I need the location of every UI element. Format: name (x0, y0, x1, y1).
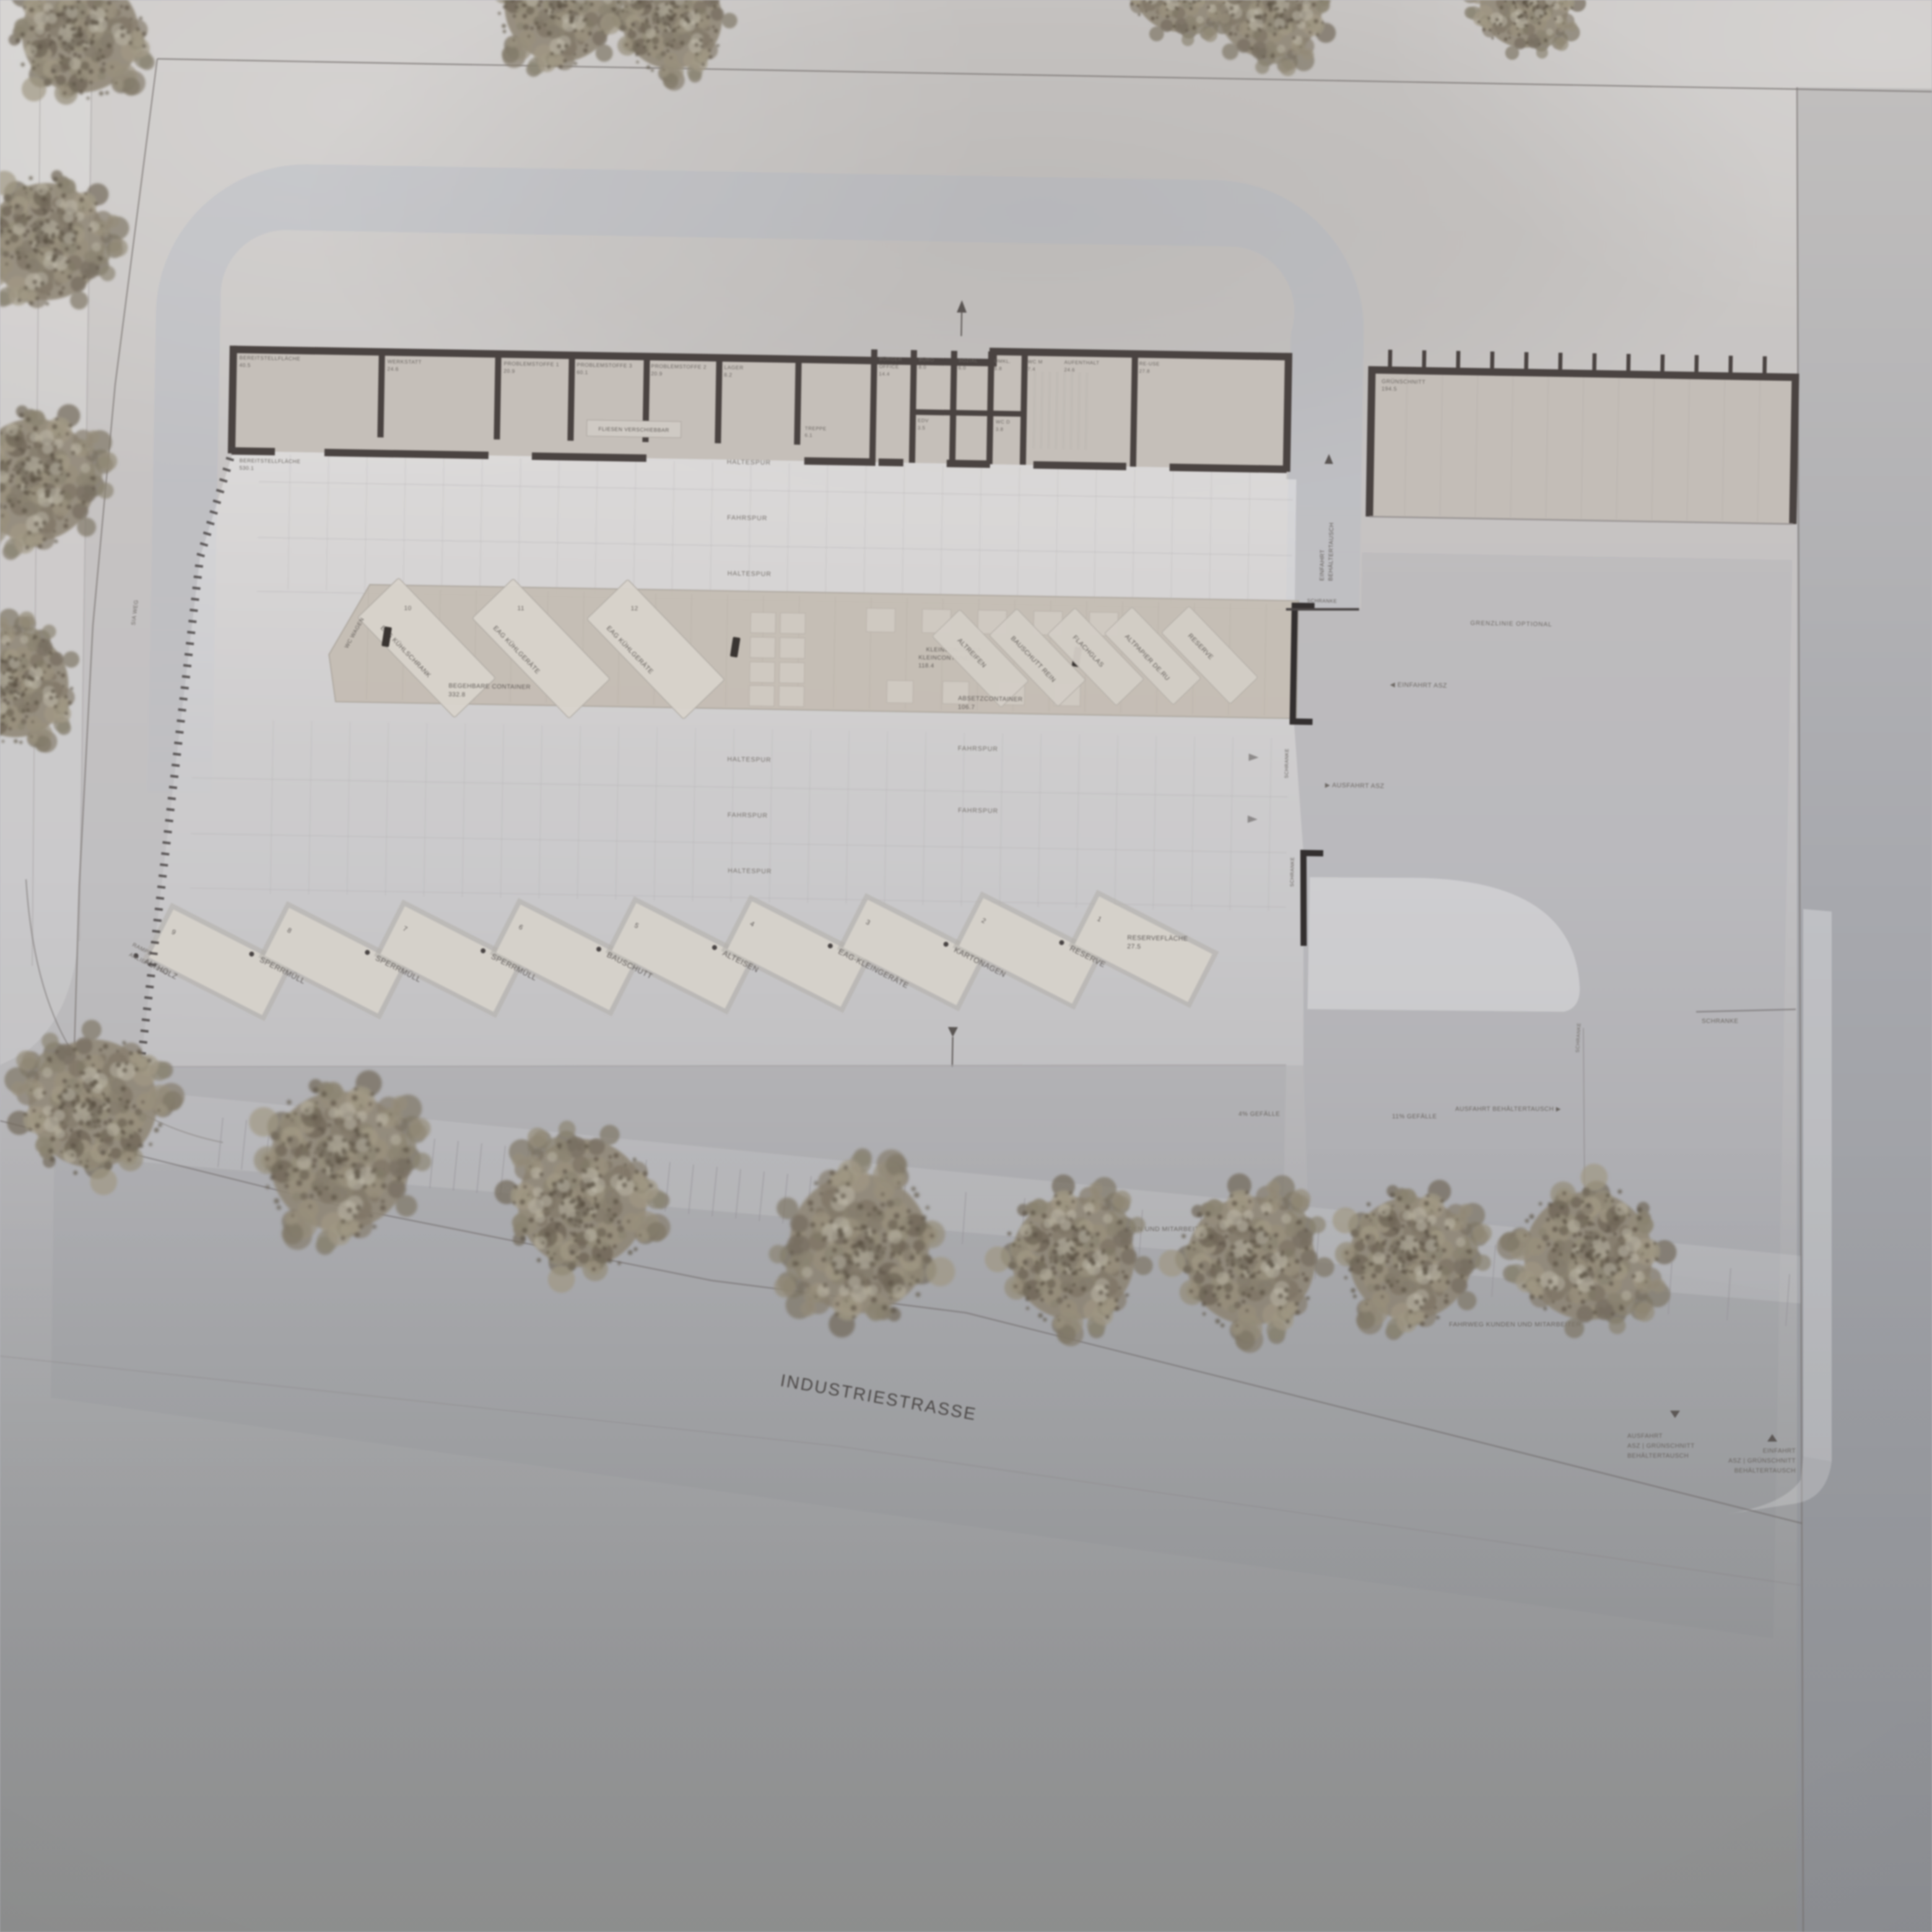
svg-text:EINFAHRT: EINFAHRT (1319, 549, 1326, 581)
svg-text:PROBLEMSTOFFE 2: PROBLEMSTOFFE 2 (651, 363, 707, 370)
svg-text:BÜRO: BÜRO (919, 357, 934, 363)
svg-text:6.1: 6.1 (804, 432, 812, 438)
svg-text:GRÜNSCHNITT: GRÜNSCHNITT (1382, 378, 1425, 385)
svg-text:BEGEHBARE CONTAINER: BEGEHBARE CONTAINER (448, 682, 531, 690)
svg-text:EDV: EDV (918, 418, 929, 424)
svg-text:EINFAHRT: EINFAHRT (1763, 1448, 1796, 1455)
svg-text:3.8: 3.8 (996, 427, 1004, 432)
svg-text:SCHRANKE: SCHRANKE (1307, 598, 1338, 604)
svg-text:SCHRANKE: SCHRANKE (1702, 1018, 1739, 1025)
svg-text:UMKL.: UMKL. (994, 359, 1011, 364)
svg-text:FAHRSPUR: FAHRSPUR (727, 514, 767, 522)
svg-text:◀ EINFAHRT ASZ: ◀ EINFAHRT ASZ (1390, 681, 1448, 690)
svg-text:▶ AUSFAHRT ASZ: ▶ AUSFAHRT ASZ (1325, 781, 1385, 790)
svg-text:20.9: 20.9 (503, 368, 515, 374)
svg-text:FAHRSPUR: FAHRSPUR (958, 807, 998, 815)
svg-text:HALTESPUR: HALTESPUR (727, 755, 771, 764)
svg-text:LAGER: LAGER (724, 364, 743, 371)
svg-text:10: 10 (404, 605, 411, 612)
svg-text:AUSFAHRT BEHÄLTERTAUSCH ▶: AUSFAHRT BEHÄLTERTAUSCH ▶ (1455, 1105, 1561, 1113)
svg-text:4% GEFÄLLE: 4% GEFÄLLE (1238, 1110, 1280, 1118)
svg-text:FAHRSPUR: FAHRSPUR (958, 745, 998, 753)
svg-text:HALTESPUR: HALTESPUR (728, 570, 772, 578)
svg-text:ABSETZCONTAINER: ABSETZCONTAINER (958, 695, 1023, 703)
svg-text:14.4: 14.4 (879, 371, 890, 376)
svg-text:BEHÄLTERTAUSCH: BEHÄLTERTAUSCH (1328, 522, 1336, 581)
svg-text:PROBLEMSTOFFE 3: PROBLEMSTOFFE 3 (577, 362, 632, 369)
svg-text:BEREITSTELLFLÄCHE: BEREITSTELLFLÄCHE (240, 354, 301, 362)
svg-text:8.0: 8.0 (918, 365, 926, 370)
svg-text:BEHÄLTERTAUSCH: BEHÄLTERTAUSCH (1627, 1452, 1689, 1460)
svg-text:BEREITSTELLFLÄCHE: BEREITSTELLFLÄCHE (240, 457, 301, 464)
svg-text:RESERVEFLÄCHE: RESERVEFLÄCHE (1127, 934, 1188, 943)
svg-text:HALTESPUR: HALTESPUR (728, 867, 772, 875)
svg-text:AUFENTHALT: AUFENTHALT (1064, 360, 1100, 366)
svg-text:24.6: 24.6 (387, 366, 399, 372)
svg-text:SCHRANKE: SCHRANKE (1284, 748, 1290, 778)
svg-text:40.5: 40.5 (239, 362, 251, 368)
svg-text:PROBLEMSTOFFE 1: PROBLEMSTOFFE 1 (503, 360, 559, 368)
svg-text:FLIESEN VERSCHIEBBAR: FLIESEN VERSCHIEBBAR (598, 426, 669, 433)
svg-text:OFFICE: OFFICE (879, 363, 899, 370)
svg-text:530.1: 530.1 (239, 464, 254, 471)
svg-text:6.0: 6.0 (958, 365, 966, 371)
svg-text:FAHRWEG KUNDEN UND MITARBEITER: FAHRWEG KUNDEN UND MITARBEITER (1449, 1321, 1582, 1328)
svg-text:WC D: WC D (996, 419, 1010, 425)
svg-text:11: 11 (517, 605, 524, 612)
svg-text:106.7: 106.7 (958, 704, 975, 711)
svg-text:ASZ | GRÜNSCHNITT: ASZ | GRÜNSCHNITT (1728, 1457, 1796, 1464)
svg-text:RE-USE: RE-USE (1139, 361, 1160, 367)
svg-text:5.8: 5.8 (994, 366, 1002, 372)
svg-text:WERKSTATT: WERKSTATT (387, 359, 422, 365)
svg-text:3.5: 3.5 (918, 425, 926, 431)
svg-text:ASZ | GRÜNSCHNITT: ASZ | GRÜNSCHNITT (1627, 1442, 1695, 1450)
svg-text:BÜRGER: BÜRGER (879, 356, 902, 362)
svg-text:AUSFAHRT: AUSFAHRT (1627, 1433, 1663, 1440)
svg-text:11% GEFÄLLE: 11% GEFÄLLE (1392, 1113, 1437, 1120)
svg-text:194.5: 194.5 (1382, 386, 1397, 392)
svg-text:7.4: 7.4 (1027, 367, 1035, 372)
svg-text:TREPPE: TREPPE (805, 425, 827, 432)
svg-text:118.4: 118.4 (918, 663, 934, 669)
svg-text:60.1: 60.1 (577, 369, 588, 375)
svg-text:SOZIAL: SOZIAL (959, 358, 978, 364)
svg-text:WC M: WC M (1028, 359, 1043, 365)
svg-text:27.5: 27.5 (1127, 943, 1141, 951)
svg-text:BEHÄLTERTAUSCH: BEHÄLTERTAUSCH (1734, 1467, 1796, 1474)
svg-text:8.2: 8.2 (724, 372, 733, 378)
svg-text:12: 12 (631, 605, 638, 612)
svg-text:FAHRSPUR: FAHRSPUR (728, 811, 768, 819)
svg-text:GRENZLINIE OPTIONAL: GRENZLINIE OPTIONAL (1470, 620, 1552, 628)
svg-text:332.8: 332.8 (448, 691, 466, 698)
svg-text:SCHRANKE: SCHRANKE (1289, 857, 1295, 887)
svg-text:20.9: 20.9 (651, 370, 663, 376)
svg-text:27.8: 27.8 (1139, 368, 1150, 374)
svg-text:24.6: 24.6 (1064, 367, 1075, 373)
